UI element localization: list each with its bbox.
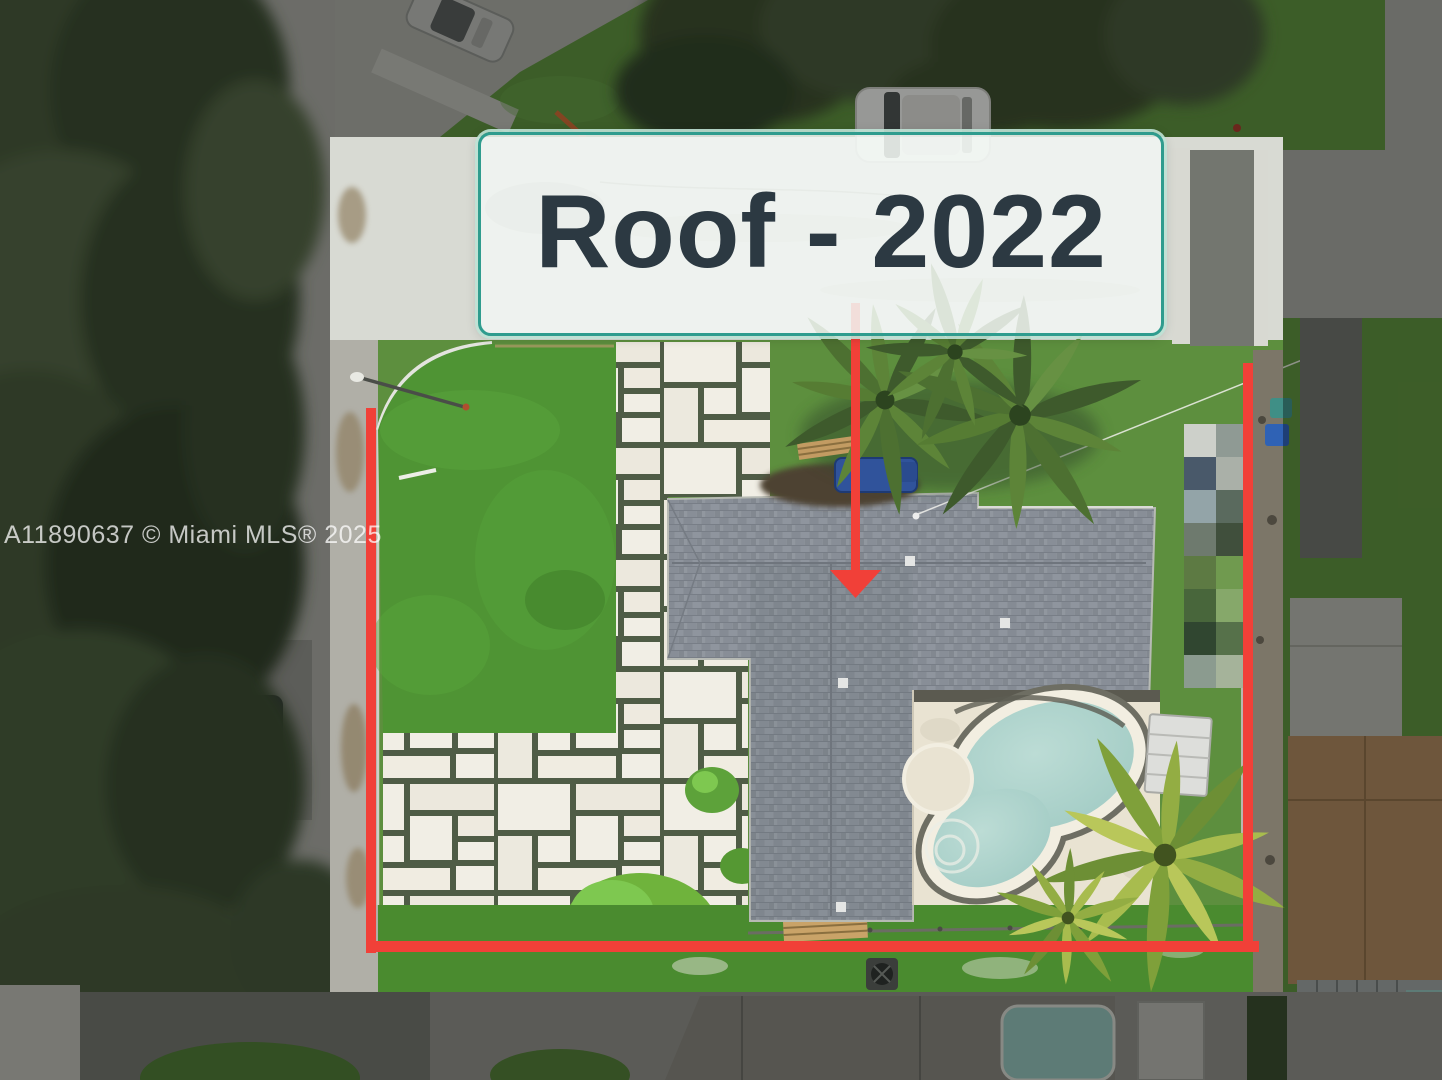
roof-year-label-text: Roof - 2022 (535, 180, 1107, 284)
ac-unit (866, 958, 898, 990)
roof-year-label: Roof - 2022 (478, 132, 1164, 336)
front-lawn (370, 344, 616, 733)
mls-watermark: A11890637 © Miami MLS® 2025 (4, 521, 382, 550)
property-boundary-bottom (366, 941, 1259, 952)
privacy-blur-mosaic (1184, 424, 1248, 688)
property-boundary-left (366, 408, 376, 953)
property-boundary-right (1243, 363, 1253, 951)
aerial-property-photo: Roof - 2022 A11890637 © Miami MLS® 2025 (0, 0, 1442, 1080)
